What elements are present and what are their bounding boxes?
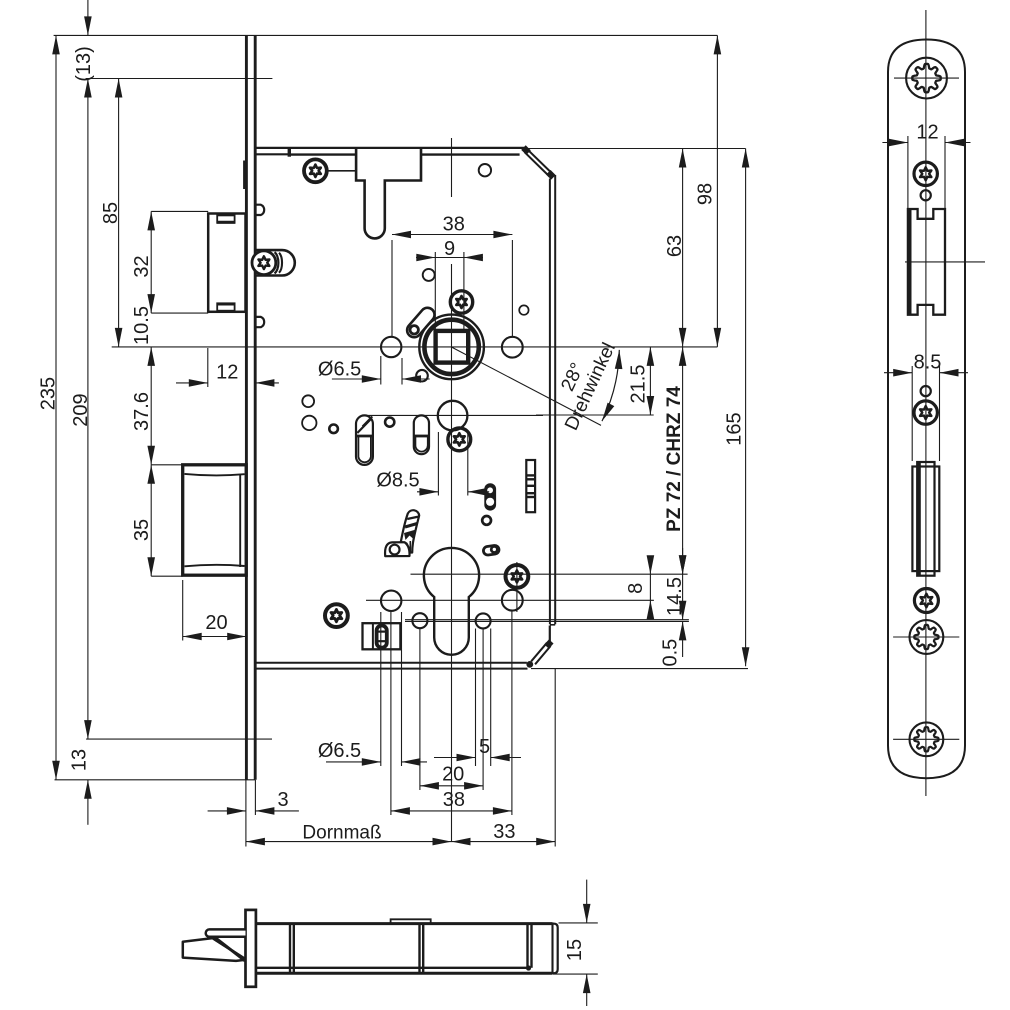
svg-text:(13): (13) [73, 46, 95, 82]
svg-text:3: 3 [277, 789, 288, 811]
svg-text:209: 209 [70, 393, 92, 426]
svg-text:85: 85 [100, 202, 122, 224]
svg-text:20: 20 [442, 764, 464, 786]
svg-text:38: 38 [443, 214, 465, 236]
svg-text:37.6: 37.6 [131, 392, 153, 431]
svg-text:8.5: 8.5 [914, 352, 942, 374]
svg-text:35: 35 [131, 519, 153, 541]
svg-text:PZ 72 / CHRZ 74: PZ 72 / CHRZ 74 [664, 386, 685, 532]
svg-text:165: 165 [724, 412, 746, 445]
svg-text:8: 8 [625, 583, 647, 594]
svg-text:38: 38 [443, 789, 465, 811]
svg-text:12: 12 [916, 122, 938, 144]
svg-text:63: 63 [664, 235, 686, 257]
svg-text:235: 235 [38, 377, 60, 410]
svg-text:32: 32 [131, 255, 153, 277]
svg-text:10.5: 10.5 [131, 306, 153, 345]
svg-text:12: 12 [216, 362, 238, 384]
svg-text:98: 98 [695, 183, 717, 205]
svg-text:9: 9 [444, 238, 455, 260]
svg-text:Dornmaß: Dornmaß [302, 823, 381, 844]
svg-text:0.5: 0.5 [660, 639, 682, 667]
svg-text:13: 13 [68, 749, 90, 771]
svg-text:Ø6.5: Ø6.5 [318, 740, 361, 762]
svg-text:15: 15 [564, 939, 586, 961]
svg-text:Ø8.5: Ø8.5 [376, 470, 419, 492]
svg-text:Ø6.5: Ø6.5 [318, 359, 361, 381]
svg-text:20: 20 [205, 612, 227, 634]
svg-text:5: 5 [479, 736, 490, 758]
svg-text:21.5: 21.5 [628, 365, 650, 404]
svg-text:33: 33 [493, 821, 515, 843]
svg-text:14.5: 14.5 [664, 577, 686, 616]
